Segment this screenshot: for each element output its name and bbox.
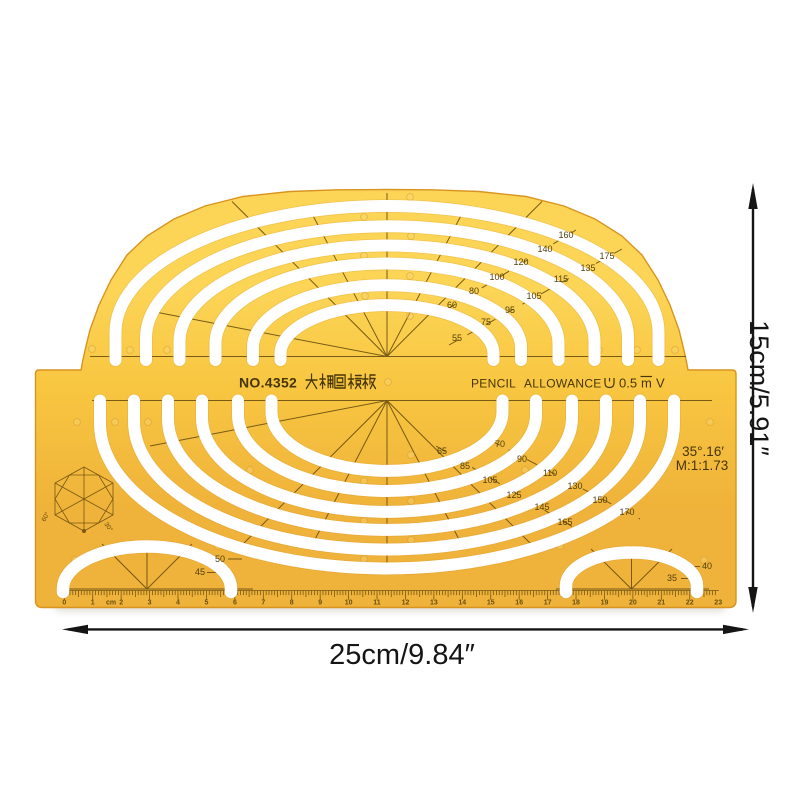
svg-text:NO.4352: NO.4352 <box>239 375 297 391</box>
svg-text:145: 145 <box>534 502 549 512</box>
svg-text:22: 22 <box>686 600 694 607</box>
svg-text:16: 16 <box>515 600 523 607</box>
svg-text:70: 70 <box>495 439 505 449</box>
svg-text:80: 80 <box>469 286 479 296</box>
svg-text:23: 23 <box>714 600 722 607</box>
svg-text:105: 105 <box>482 475 497 485</box>
svg-text:105: 105 <box>526 291 541 301</box>
svg-text:150: 150 <box>592 495 607 505</box>
svg-text:20: 20 <box>629 600 637 607</box>
svg-text:2: 2 <box>119 600 123 607</box>
svg-text:M:1:1.73: M:1:1.73 <box>676 458 729 473</box>
svg-text:0: 0 <box>62 600 66 607</box>
svg-text:1: 1 <box>91 600 95 607</box>
svg-text:21: 21 <box>657 600 665 607</box>
svg-text:12: 12 <box>402 600 410 607</box>
svg-text:175: 175 <box>599 251 614 261</box>
svg-text:115: 115 <box>554 274 568 284</box>
svg-text:10: 10 <box>345 600 353 607</box>
svg-text:125: 125 <box>506 490 521 500</box>
svg-text:V: V <box>656 376 665 391</box>
svg-text:100: 100 <box>489 272 504 282</box>
svg-text:35°.16′: 35°.16′ <box>682 444 724 459</box>
svg-text:60: 60 <box>447 300 457 310</box>
svg-text:13: 13 <box>430 600 438 607</box>
svg-text:50: 50 <box>215 554 225 564</box>
svg-text:85: 85 <box>460 461 470 471</box>
svg-text:130: 130 <box>567 481 582 491</box>
svg-text:3: 3 <box>148 600 152 607</box>
svg-text:18: 18 <box>572 600 580 607</box>
svg-text:14: 14 <box>458 600 466 607</box>
svg-text:90: 90 <box>517 454 527 464</box>
svg-text:160: 160 <box>558 230 573 240</box>
svg-text:135: 135 <box>580 263 595 273</box>
svg-text:15cm/5.91″: 15cm/5.91″ <box>744 320 774 456</box>
svg-text:17: 17 <box>544 600 552 607</box>
svg-text:45: 45 <box>195 567 205 577</box>
svg-text:11: 11 <box>373 600 381 607</box>
svg-text:75: 75 <box>481 317 491 327</box>
svg-text:65: 65 <box>437 446 447 456</box>
svg-text:7: 7 <box>261 600 265 607</box>
svg-text:40: 40 <box>702 561 712 571</box>
svg-text:0.5: 0.5 <box>619 376 637 391</box>
svg-text:m: m <box>641 376 652 391</box>
svg-text:4: 4 <box>176 600 180 607</box>
svg-text:55: 55 <box>452 333 462 343</box>
svg-text:15: 15 <box>487 600 495 607</box>
svg-text:5: 5 <box>204 600 208 607</box>
svg-text:6: 6 <box>233 600 237 607</box>
svg-text:35: 35 <box>667 573 677 583</box>
svg-text:19: 19 <box>601 600 609 607</box>
svg-text:cm: cm <box>106 600 116 607</box>
svg-text:ALLOWANCE: ALLOWANCE <box>524 377 602 391</box>
svg-text:110: 110 <box>543 468 557 478</box>
svg-text:25cm/9.84″: 25cm/9.84″ <box>329 639 475 671</box>
svg-text:120: 120 <box>513 257 528 267</box>
svg-text:165: 165 <box>557 517 572 527</box>
svg-text:140: 140 <box>537 244 552 254</box>
svg-text:8: 8 <box>290 600 294 607</box>
svg-text:170: 170 <box>619 507 634 517</box>
svg-text:9: 9 <box>318 600 322 607</box>
svg-text:PENCIL: PENCIL <box>471 377 516 391</box>
svg-text:95: 95 <box>505 305 515 315</box>
